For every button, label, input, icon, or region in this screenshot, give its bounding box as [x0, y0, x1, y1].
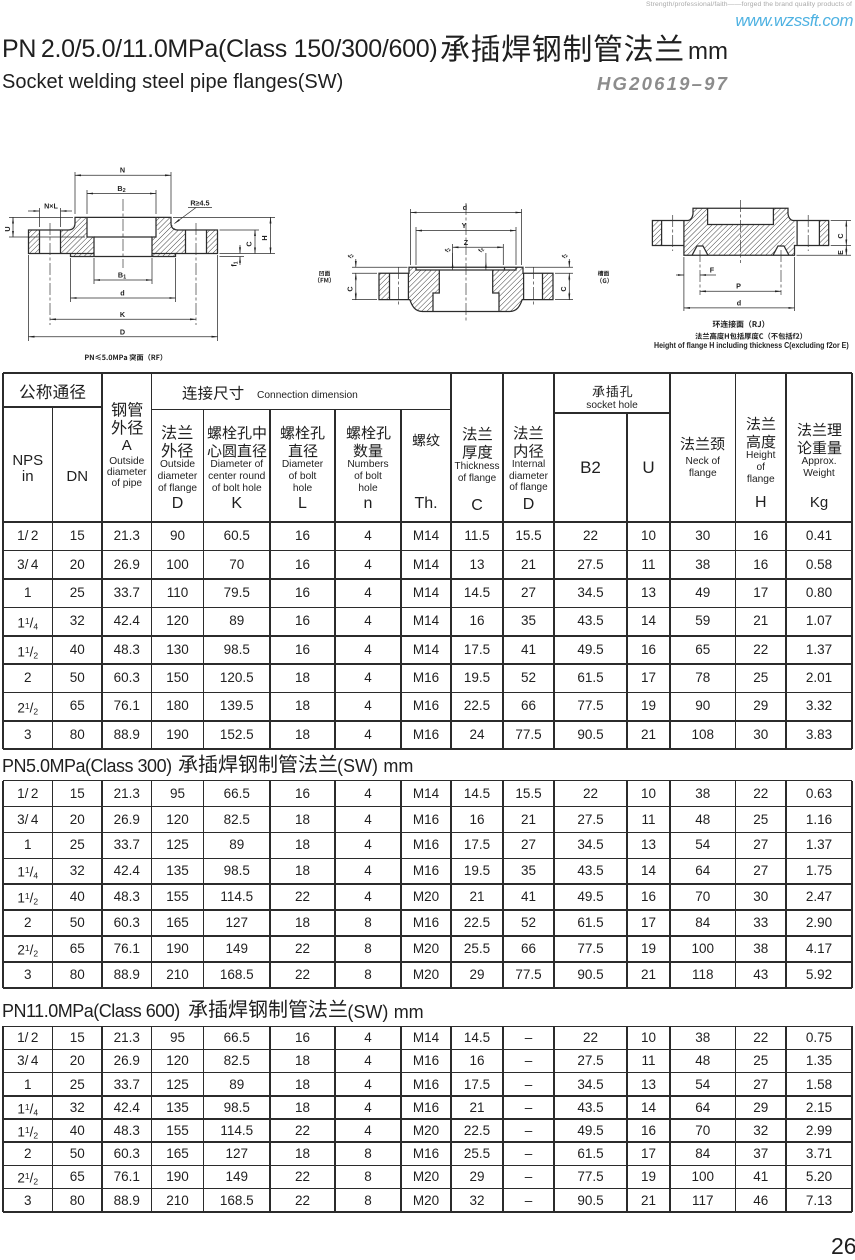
svg-text:H: H — [260, 235, 269, 240]
svg-text:C: C — [346, 286, 355, 291]
svg-text:B2: B2 — [117, 184, 125, 194]
svg-text:C: C — [559, 286, 568, 291]
svg-text:U: U — [3, 226, 12, 231]
svg-text:f2: f2 — [561, 252, 569, 260]
svg-text:Z: Z — [464, 238, 469, 247]
svg-text:R≥4.5: R≥4.5 — [190, 199, 209, 208]
svg-text:C: C — [245, 241, 254, 246]
svg-text:E: E — [838, 250, 845, 255]
svg-text:f2: f2 — [347, 252, 355, 260]
svg-text:K: K — [120, 310, 126, 319]
svg-text:d: d — [463, 203, 467, 212]
svg-text:f2: f2 — [444, 246, 452, 254]
svg-text:B1: B1 — [118, 271, 126, 281]
svg-text:P: P — [736, 282, 741, 291]
svg-text:N×L: N×L — [44, 201, 58, 210]
svg-text:Y: Y — [462, 221, 467, 230]
svg-text:F: F — [710, 265, 715, 274]
svg-text:C: C — [836, 233, 845, 238]
svg-text:d: d — [737, 298, 741, 307]
svg-text:f1: f1 — [232, 261, 240, 266]
svg-text:D: D — [120, 327, 125, 336]
svg-text:d: d — [120, 289, 124, 298]
svg-text:N: N — [120, 166, 125, 175]
